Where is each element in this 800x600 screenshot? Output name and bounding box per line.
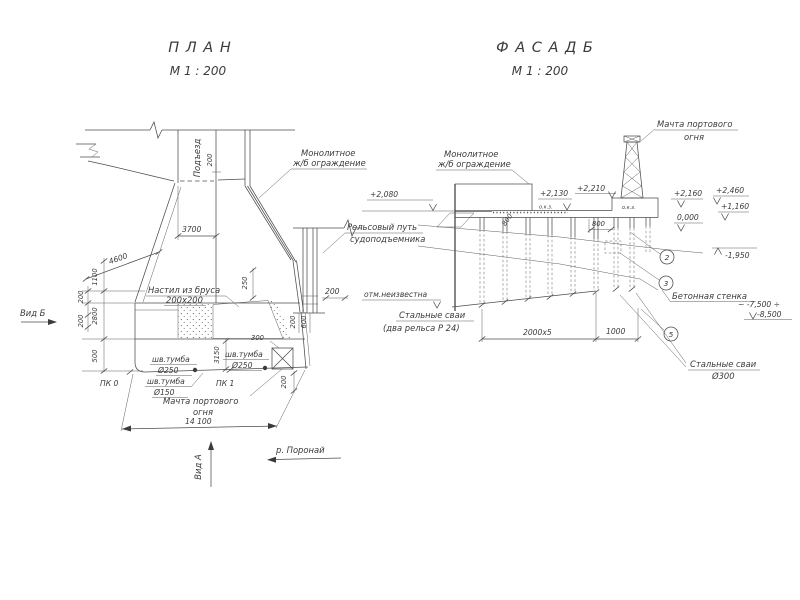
view-a-label: Вид А [193, 454, 203, 480]
facade-piles [479, 218, 650, 308]
dim-250: 250 [241, 277, 249, 290]
bollard-dot-2 [263, 366, 267, 370]
plan-mast-label-2: огня [193, 407, 213, 417]
bollard1-name: шв.тумба [152, 355, 190, 364]
dim-500: 500 [91, 350, 99, 363]
level-2210: +2,210 [577, 184, 605, 193]
plan-road-lines [76, 122, 304, 312]
rail-label-2: судоподъемника [350, 234, 425, 244]
bollard2-name: шв.тумба [225, 350, 263, 359]
dim-3150: 3150 [213, 346, 221, 363]
pk1-label: ПК 1 [216, 379, 234, 388]
steel-piles-label-1: Стальные сваи [690, 359, 757, 369]
dim-200b: 200 [77, 315, 85, 328]
facade-labels: Мачта портового огня Монолитное ж/б огра… [362, 119, 760, 381]
level-2460: +2,460 [716, 186, 744, 195]
level-1160: +1,160 [721, 202, 749, 211]
bollard1-dia: Ø250 [157, 366, 179, 375]
plan-title: П Л А Н [168, 40, 231, 56]
facade-guard-label-2: ж/б ограждение [437, 159, 511, 169]
view-b-label: Вид Б [20, 308, 46, 318]
plan-labels: Подъезд Монолитное ж/б ограждение Настил… [20, 139, 425, 487]
level-2080: +2,080 [370, 190, 398, 199]
facade-title: Ф А С А Д Б [496, 40, 594, 56]
view-b-arrow [48, 319, 57, 325]
dim-mast-200: 200 [280, 376, 288, 389]
bollard-dot-1 [193, 368, 197, 372]
plan-guard-label-2: ж/б ограждение [292, 158, 366, 168]
level-m8500: -8,500 [757, 310, 782, 319]
facade-axis-markers: 2 3 5 [620, 232, 678, 341]
axis-marker-2: 2 [665, 253, 670, 262]
axis-marker-3: 3 [664, 279, 669, 288]
plan-mast-label-1: Мачта портового [163, 396, 238, 406]
rail-label-1: Рельсовый путь [347, 222, 417, 232]
deck-label-1: Настил из бруса [148, 285, 220, 295]
river-arrow [267, 457, 276, 463]
wall-label: Бетонная стенка [672, 291, 747, 301]
dim-3700: 3700 [182, 225, 201, 234]
drawing-sheet: П Л А Н М 1 : 200 Ф А С А Д Б М 1 : 200 [0, 0, 800, 600]
river-label: р. Поронай [275, 445, 325, 455]
deck-label-2: 200х200 [166, 295, 203, 305]
dim-rail-200: 200 [325, 287, 340, 296]
okz-label-1: о.к.з. [539, 205, 553, 211]
plan-scale: М 1 : 200 [170, 64, 227, 78]
dim-2800: 2800 [91, 307, 99, 324]
drawing-svg: П Л А Н М 1 : 200 Ф А С А Д Б М 1 : 200 [0, 0, 800, 600]
plan-view: 200 3700 4600 1100 200 2800 200 500 [20, 122, 425, 487]
facade-mast-label-1: Мачта портового [657, 119, 732, 129]
plan-guard-label-1: Монолитное [301, 148, 355, 158]
piles-label-2: (два рельса Р 24) [383, 323, 460, 333]
level-2130: +2,130 [540, 189, 568, 198]
steel-piles-label-2: Ø300 [711, 371, 735, 381]
dim-200a: 200 [77, 291, 85, 304]
piles-label-1: Стальные сваи [399, 310, 466, 320]
dim-800a: 800 [500, 212, 514, 227]
bollard2-dia: Ø250 [231, 361, 253, 370]
level-m1950: -1,950 [725, 251, 750, 260]
facade-guard-label-1: Монолитное [444, 149, 498, 159]
dim-1000: 1000 [606, 327, 625, 336]
view-a-arrow [208, 441, 214, 450]
unknown-elev-label: отм.неизвестна [364, 290, 428, 299]
road-label: Подъезд [192, 139, 202, 178]
facade-view: +2,080 +2,130 +2,210 +2,160 +2,460 +1,16… [362, 119, 792, 381]
level-2160: +2,160 [674, 189, 702, 198]
facade-mast [621, 136, 643, 198]
axis-marker-5: 5 [669, 330, 674, 339]
titles: П Л А Н М 1 : 200 Ф А С А Д Б М 1 : 200 [168, 40, 594, 78]
dim-deck-200: 200 [289, 316, 297, 329]
bollard3-name: шв.тумба [147, 377, 185, 386]
facade-mast-label-2: огня [684, 132, 704, 142]
dim-1100: 1100 [91, 268, 99, 285]
level-0000: 0,000 [677, 213, 699, 222]
dim-deck-600: 600 [300, 316, 308, 329]
pk0-label: ПК 0 [100, 379, 119, 388]
facade-scale: М 1 : 200 [512, 64, 569, 78]
okz-label-2: о.к.з. [622, 205, 636, 211]
dim-300: 300 [251, 334, 264, 342]
dim-2000x5: 2000х5 [523, 328, 552, 337]
dim-total: 14 100 [185, 417, 212, 426]
dim-road-edge: 200 [206, 154, 214, 167]
